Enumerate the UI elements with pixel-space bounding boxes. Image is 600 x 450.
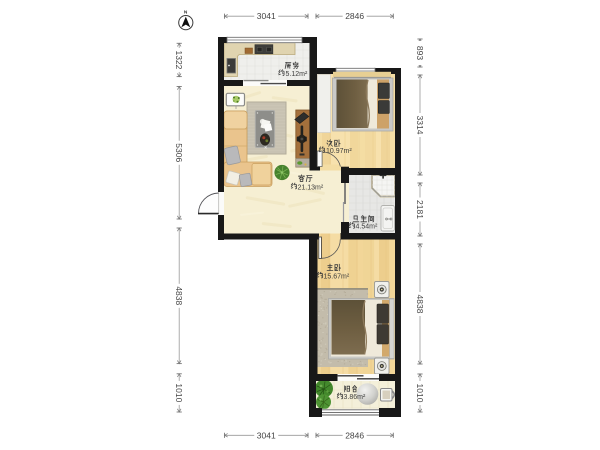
- svg-text:2846: 2846: [345, 11, 364, 21]
- svg-text:5.12m²: 5.12m²: [286, 71, 308, 78]
- svg-text:3041: 3041: [257, 11, 276, 21]
- svg-text:3041: 3041: [257, 430, 276, 440]
- svg-text:15.67m²: 15.67m²: [324, 273, 350, 280]
- svg-text:2846: 2846: [345, 430, 364, 440]
- svg-text:893: 893: [415, 46, 425, 60]
- svg-text:1322: 1322: [174, 50, 184, 69]
- svg-text:5306: 5306: [174, 143, 184, 162]
- svg-text:21.13m²: 21.13m²: [298, 184, 324, 191]
- svg-text:1010: 1010: [415, 384, 425, 403]
- svg-text:4.54m²: 4.54m²: [356, 224, 378, 231]
- svg-text:3314: 3314: [415, 116, 425, 135]
- svg-text:4838: 4838: [174, 286, 184, 305]
- svg-text:1010: 1010: [174, 383, 184, 402]
- svg-text:2181: 2181: [415, 200, 425, 219]
- svg-text:N: N: [184, 10, 188, 16]
- svg-text:3.86m²: 3.86m²: [344, 394, 366, 401]
- svg-text:4838: 4838: [415, 295, 425, 314]
- svg-text:10.97m²: 10.97m²: [326, 148, 352, 155]
